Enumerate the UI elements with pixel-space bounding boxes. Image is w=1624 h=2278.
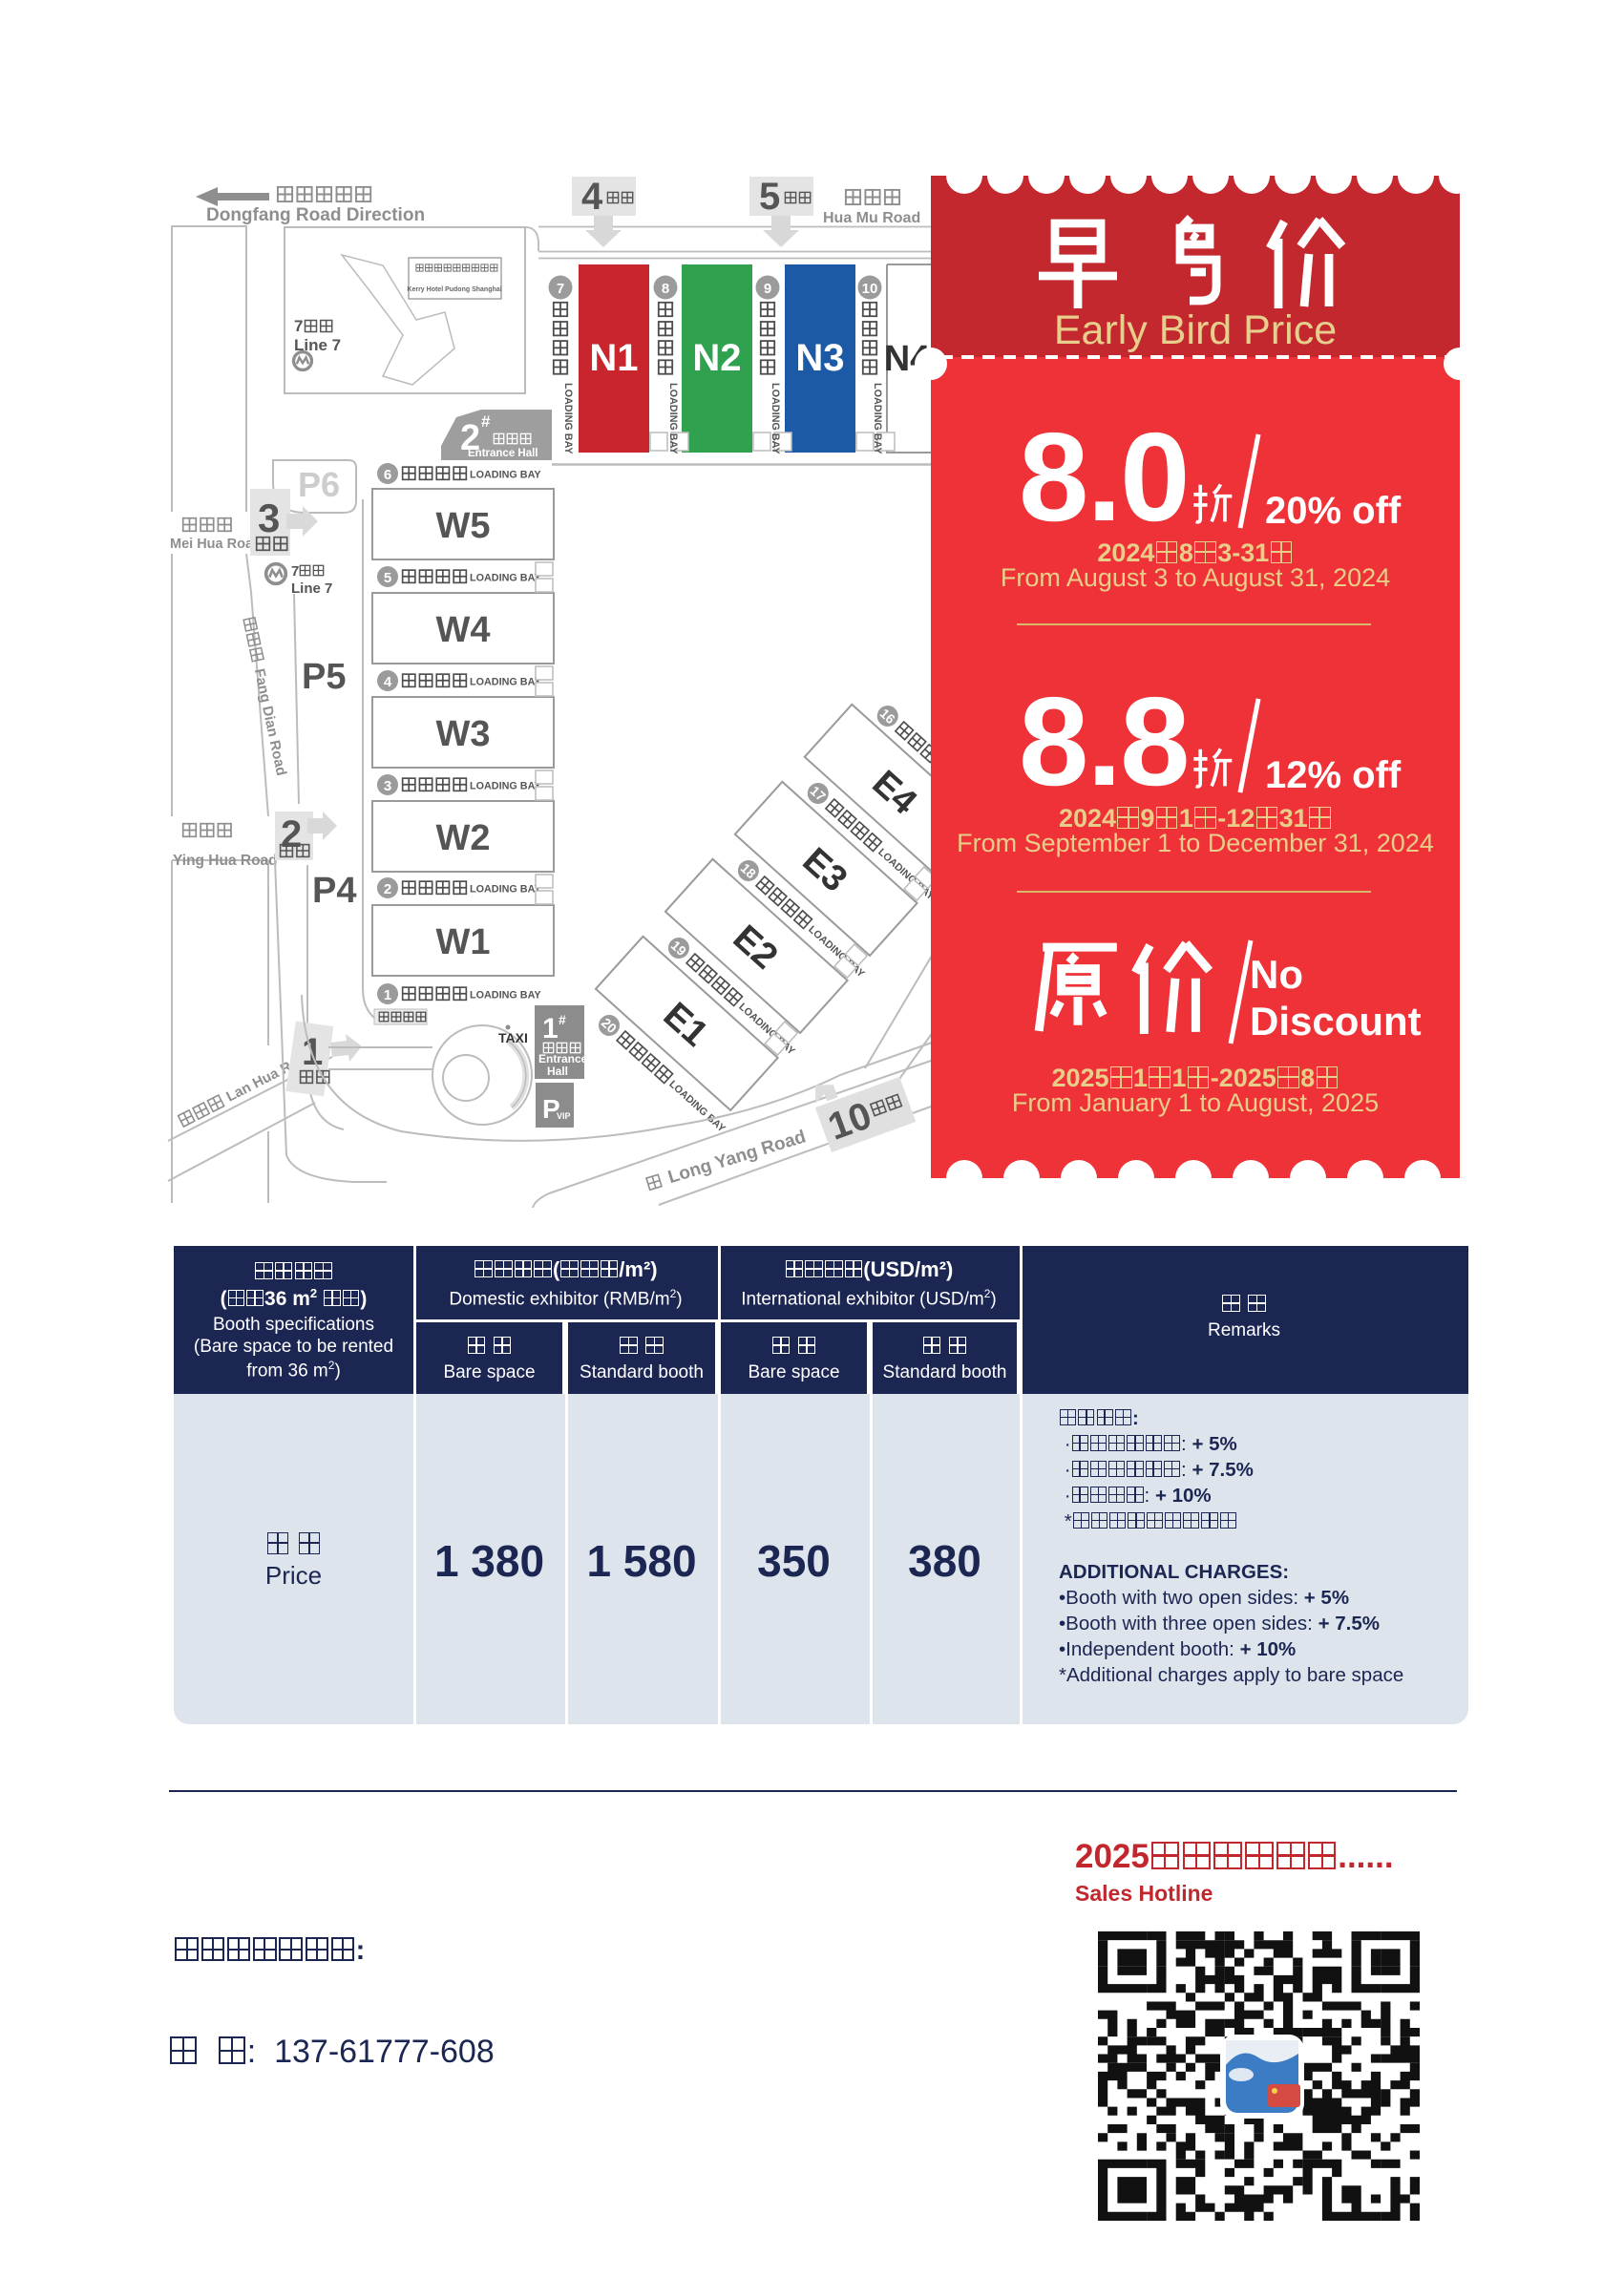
svg-text:W1: W1 [436,922,491,962]
svg-text:7: 7 [294,317,303,335]
svg-text:Mei Hua Road: Mei Hua Road [170,537,262,552]
svg-text:LOADING BAY: LOADING BAY [470,470,541,481]
svg-text:9: 9 [764,281,771,297]
svg-text:Fang Dian Road: Fang Dian Road [251,667,289,777]
svg-text:LOADING BAY: LOADING BAY [872,383,883,454]
svg-text:W4: W4 [436,610,491,650]
svg-text:7: 7 [291,563,299,580]
svg-text:LOADING BAY: LOADING BAY [770,383,781,454]
svg-text:P6: P6 [298,465,340,504]
svg-text:N1: N1 [589,337,638,379]
svg-text:2: 2 [384,881,391,897]
svg-text:#: # [481,412,491,431]
svg-text:Ying Hua Road: Ying Hua Road [173,853,278,869]
svg-text:4: 4 [384,674,392,690]
svg-text:3: 3 [258,496,280,540]
svg-text:LOADING BAY: LOADING BAY [470,884,541,896]
svg-text:W2: W2 [436,818,491,858]
svg-text:1: 1 [542,1013,559,1044]
svg-text:Entrance: Entrance [538,1052,588,1065]
svg-text:P5: P5 [302,657,346,697]
svg-text:#: # [559,1012,566,1027]
svg-text:LOADING BAY: LOADING BAY [562,383,574,454]
svg-text:Hua Mu Road: Hua Mu Road [823,210,920,226]
svg-text:8: 8 [662,281,669,297]
svg-text:5: 5 [384,570,391,586]
svg-text:N2: N2 [692,337,741,379]
svg-text:Line 7: Line 7 [291,580,332,597]
svg-text:17: 17 [808,783,829,804]
svg-text:7: 7 [557,281,564,297]
svg-text:Dongfang Road Direction: Dongfang Road Direction [206,205,425,225]
svg-text:LOADING BAY: LOADING BAY [470,781,541,792]
svg-text:19: 19 [668,938,689,959]
svg-text:6: 6 [384,467,391,483]
svg-text:TAXI: TAXI [498,1030,528,1045]
svg-text:3: 3 [384,778,391,794]
svg-text:Entrance Hall: Entrance Hall [468,448,538,459]
svg-text:W3: W3 [436,714,491,754]
svg-text:5: 5 [759,176,780,218]
svg-text:Kerry Hotel Pudong Shanghai: Kerry Hotel Pudong Shanghai [407,286,501,293]
svg-text:2: 2 [281,813,302,855]
svg-text:LOADING BAY: LOADING BAY [470,677,541,688]
svg-text:4: 4 [581,176,603,218]
svg-text:LOADING BAY: LOADING BAY [470,990,541,1002]
svg-text:LOADING BAY: LOADING BAY [470,573,541,584]
svg-text:1: 1 [384,987,391,1003]
svg-text:LOADING BAY: LOADING BAY [667,383,679,454]
svg-text:Long Yang Road: Long Yang Road [665,1127,808,1188]
svg-text:VIP: VIP [557,1111,571,1121]
svg-text:18: 18 [738,860,759,881]
svg-text:W5: W5 [436,506,491,546]
svg-text:N3: N3 [795,337,844,379]
svg-text:10: 10 [862,281,878,297]
svg-text:Hall: Hall [547,1065,568,1078]
svg-text:20: 20 [599,1015,620,1036]
svg-text:16: 16 [877,706,898,727]
svg-text:P4: P4 [312,871,356,911]
